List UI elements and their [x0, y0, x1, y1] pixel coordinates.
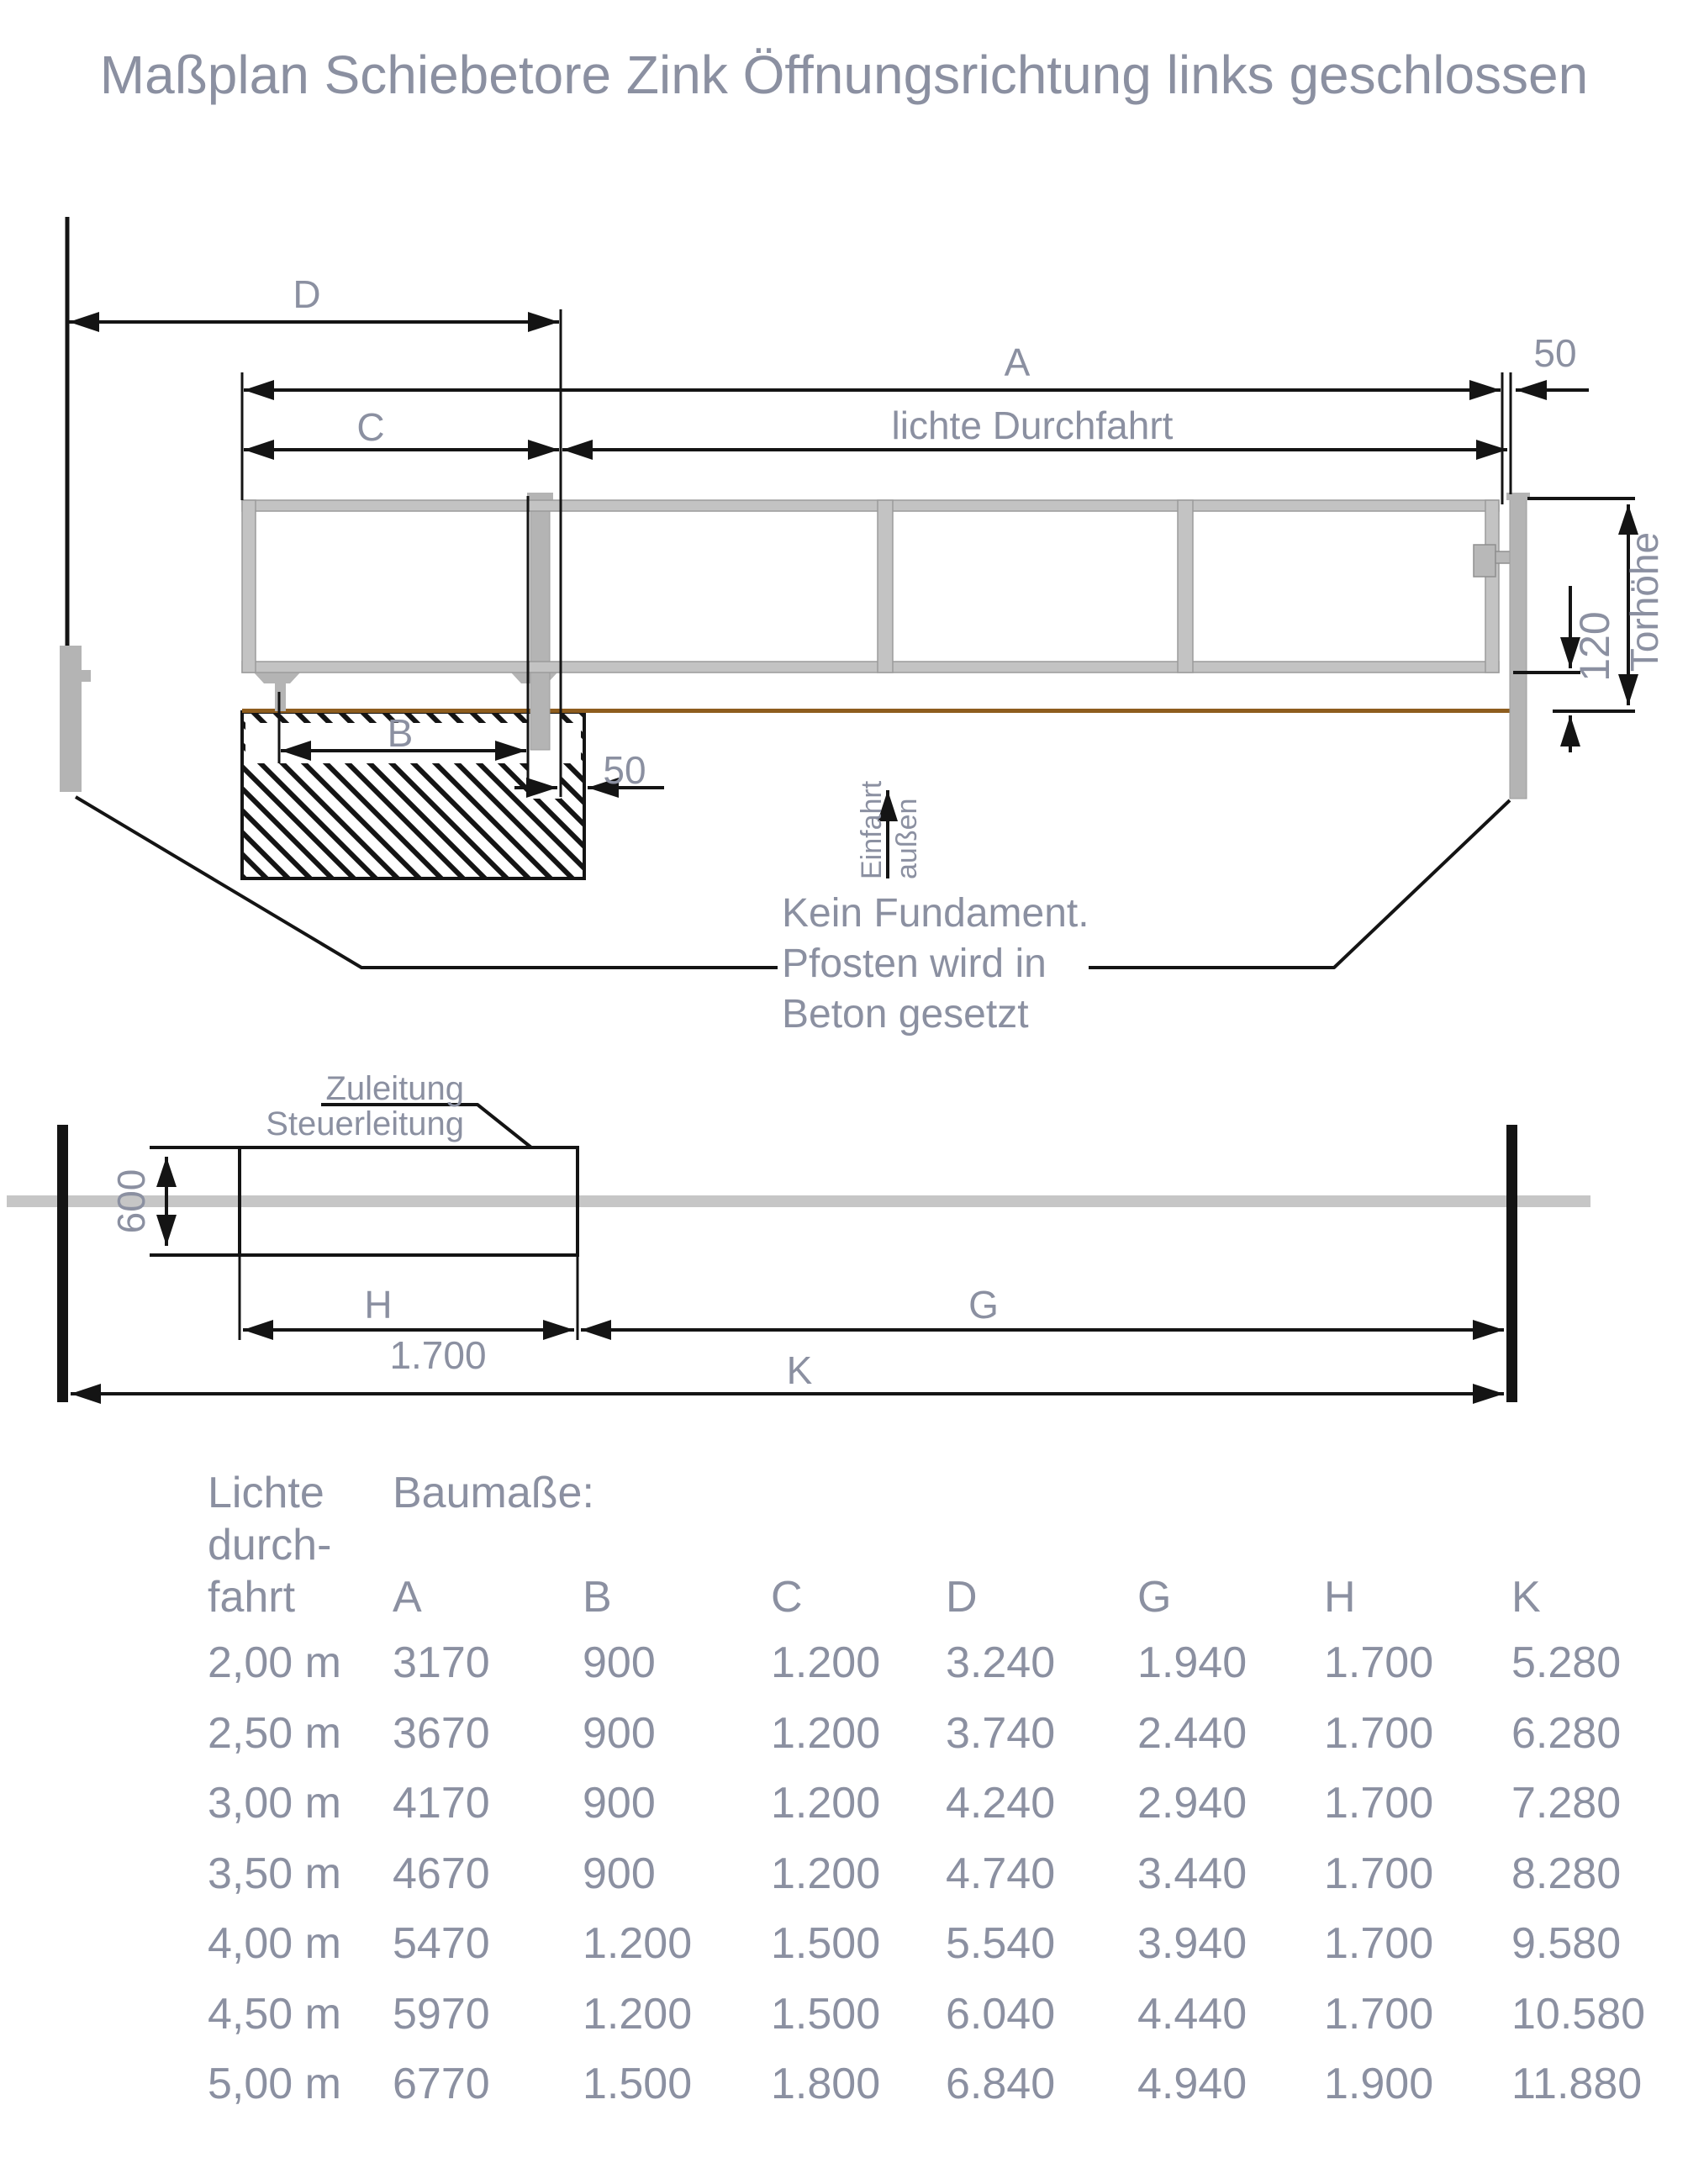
plan-track-line — [7, 1195, 1590, 1207]
size-table-rows: 2,00 m31709001.2003.2401.9401.7005.2802,… — [208, 1638, 1663, 2129]
label-supply-2: Steuerleitung — [266, 1105, 464, 1142]
table-cell: 4.940 — [1137, 2059, 1324, 2129]
guide-post — [527, 493, 553, 750]
label-g: G — [968, 1283, 999, 1327]
label-b: B — [388, 711, 414, 755]
table-cell: 5.540 — [946, 1918, 1137, 1989]
technical-drawing: D A 50 C lichte Durchfahrt B 50 Torhöhe … — [0, 0, 1688, 1454]
table-cell: 2,50 m — [208, 1708, 393, 1779]
table-cell — [583, 1468, 771, 1520]
table-cell: 5970 — [393, 1989, 583, 2060]
table-cell: 4.240 — [946, 1778, 1137, 1849]
table-cell: 1.700 — [1324, 1778, 1511, 1849]
table-cell — [1511, 1468, 1663, 1520]
table-cell: B — [583, 1572, 771, 1624]
label-gap-top: 50 — [1533, 331, 1576, 375]
table-cell: A — [393, 1572, 583, 1624]
size-table-header: LichteBaumaße:durch-fahrtABCDGHK — [208, 1468, 1663, 1624]
table-cell — [1324, 1468, 1511, 1520]
table-cell: D — [946, 1572, 1137, 1624]
table-cell: 1.700 — [1324, 1849, 1511, 1919]
table-cell — [771, 1520, 946, 1572]
table-cell: 1.200 — [583, 1918, 771, 1989]
table-cell: 4.740 — [946, 1849, 1137, 1919]
table-cell: Lichte — [208, 1468, 393, 1520]
table-cell: 6.040 — [946, 1989, 1137, 2060]
gate-leaf — [242, 500, 1499, 673]
table-cell — [771, 1468, 946, 1520]
gate-stile — [878, 500, 893, 673]
table-cell — [946, 1520, 1137, 1572]
table-cell: 6.840 — [946, 2059, 1137, 2129]
table-cell: 1.200 — [771, 1849, 946, 1919]
note-leader-right — [1089, 800, 1510, 968]
table-cell: K — [1511, 1572, 1663, 1624]
table-cell: 4170 — [393, 1778, 583, 1849]
table-cell: 1.200 — [771, 1638, 946, 1708]
table-cell: 1.700 — [1324, 1708, 1511, 1779]
table-cell — [583, 1520, 771, 1572]
label-clear-passage: lichte Durchfahrt — [892, 404, 1174, 447]
table-cell: H — [1324, 1572, 1511, 1624]
foundation-note: Kein Fundament. Pfosten wird in Beton ge… — [782, 891, 1089, 1037]
table-cell: 4,50 m — [208, 1989, 393, 2060]
table-cell: G — [1137, 1572, 1324, 1624]
table-cell: 1.800 — [771, 2059, 946, 2129]
table-cell: 7.280 — [1511, 1778, 1663, 1849]
table-cell: 1.700 — [1324, 1918, 1511, 1989]
table-cell: 10.580 — [1511, 1989, 1663, 2060]
table-cell — [1511, 1520, 1663, 1572]
table-cell: 5.280 — [1511, 1638, 1663, 1708]
table-cell: 900 — [583, 1778, 771, 1849]
label-gate-height: Torhöhe — [1622, 532, 1666, 672]
table-cell: 3.240 — [946, 1638, 1137, 1708]
table-cell: 1.900 — [1324, 2059, 1511, 2129]
table-cell: durch- — [208, 1520, 393, 1572]
table-cell: 3,00 m — [208, 1778, 393, 1849]
label-600: 600 — [109, 1169, 153, 1234]
label-h-value: 1.700 — [389, 1333, 486, 1377]
left-receiver-post — [60, 646, 91, 792]
label-gap-bottom: 50 — [603, 748, 646, 792]
table-cell: 3170 — [393, 1638, 583, 1708]
gate-stile — [1178, 500, 1193, 673]
table-cell: 1.500 — [771, 1989, 946, 2060]
table-cell: 1.700 — [1324, 1638, 1511, 1708]
gate-top-rail — [242, 500, 1499, 511]
table-cell: 4670 — [393, 1849, 583, 1919]
table-cell: 2.440 — [1137, 1708, 1324, 1779]
table-cell: Baumaße: — [393, 1468, 583, 1520]
table-cell: 6.280 — [1511, 1708, 1663, 1779]
gate-lock — [1474, 545, 1511, 577]
table-cell: 6770 — [393, 2059, 583, 2129]
gate-stile — [1485, 500, 1499, 673]
table-cell: 1.500 — [583, 2059, 771, 2129]
label-ground-clearance: 120 — [1571, 611, 1618, 681]
table-cell: 3.740 — [946, 1708, 1137, 1779]
plan-right-post — [1506, 1125, 1517, 1402]
page: { "title": "Maßplan Schiebetore Zink Öff… — [0, 0, 1688, 2184]
table-cell: 1.500 — [771, 1918, 946, 1989]
table-cell — [1324, 1520, 1511, 1572]
label-d: D — [293, 272, 320, 316]
table-cell: 900 — [583, 1638, 771, 1708]
label-entry-word-1: Einfahrt — [856, 780, 888, 879]
label-h: H — [364, 1283, 392, 1327]
table-cell — [1137, 1520, 1324, 1572]
table-cell: fahrt — [208, 1572, 393, 1624]
plan-left-post — [57, 1125, 68, 1402]
table-cell: 3.440 — [1137, 1849, 1324, 1919]
table-cell — [946, 1468, 1137, 1520]
note-line-2: Pfosten wird in — [782, 942, 1047, 986]
table-cell: 1.700 — [1324, 1989, 1511, 2060]
ground-line — [242, 709, 1510, 713]
table-cell: 3.940 — [1137, 1918, 1324, 1989]
table-cell: 9.580 — [1511, 1918, 1663, 1989]
gate-foot-left — [254, 673, 300, 711]
table-cell — [393, 1520, 583, 1572]
table-cell: C — [771, 1572, 946, 1624]
label-c: C — [356, 405, 384, 449]
label-supply-1: Zuleitung — [325, 1070, 464, 1107]
table-cell — [1137, 1468, 1324, 1520]
label-k: K — [787, 1348, 813, 1392]
table-cell: 4,00 m — [208, 1918, 393, 1989]
table-cell: 2,00 m — [208, 1638, 393, 1708]
table-cell: 11.880 — [1511, 2059, 1663, 2129]
table-cell: 8.280 — [1511, 1849, 1663, 1919]
note-line-3: Beton gesetzt — [782, 992, 1029, 1037]
table-cell: 5,00 m — [208, 2059, 393, 2129]
right-gate-post — [1506, 493, 1530, 799]
gate-stile — [242, 500, 256, 673]
table-cell: 900 — [583, 1849, 771, 1919]
table-cell: 4.440 — [1137, 1989, 1324, 2060]
table-cell: 3,50 m — [208, 1849, 393, 1919]
label-a: A — [1005, 340, 1031, 384]
gate-bottom-rail — [242, 662, 1499, 673]
table-cell: 5470 — [393, 1918, 583, 1989]
note-line-1: Kein Fundament. — [782, 891, 1089, 936]
table-cell: 900 — [583, 1708, 771, 1779]
table-cell: 1.200 — [583, 1989, 771, 2060]
table-cell: 3670 — [393, 1708, 583, 1779]
table-cell: 2.940 — [1137, 1778, 1324, 1849]
table-cell: 1.200 — [771, 1778, 946, 1849]
table-cell: 1.200 — [771, 1708, 946, 1779]
table-cell: 1.940 — [1137, 1638, 1324, 1708]
label-entry-word-2: außen — [891, 799, 923, 879]
